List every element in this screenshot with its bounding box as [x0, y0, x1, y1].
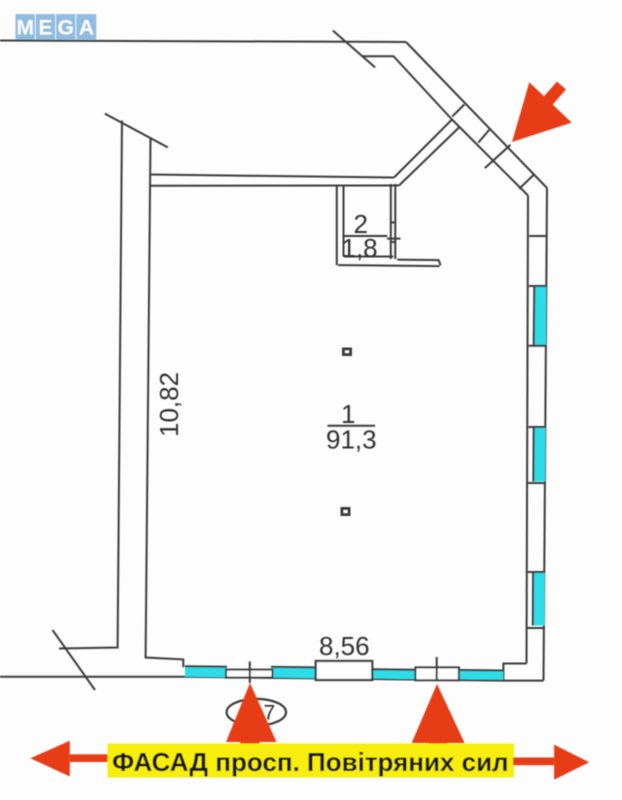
svg-text:ФАСАД просп. Повітряних сил: ФАСАД просп. Повітряних сил	[112, 747, 509, 777]
svg-text:8,56: 8,56	[319, 631, 370, 661]
svg-text:1,8: 1,8	[342, 233, 378, 263]
svg-text:E: E	[38, 17, 52, 40]
svg-text:91,3: 91,3	[326, 425, 377, 455]
svg-text:10,82: 10,82	[154, 372, 184, 437]
svg-text:G: G	[58, 17, 74, 40]
svg-text:M: M	[16, 17, 34, 40]
svg-text:A: A	[79, 17, 94, 40]
